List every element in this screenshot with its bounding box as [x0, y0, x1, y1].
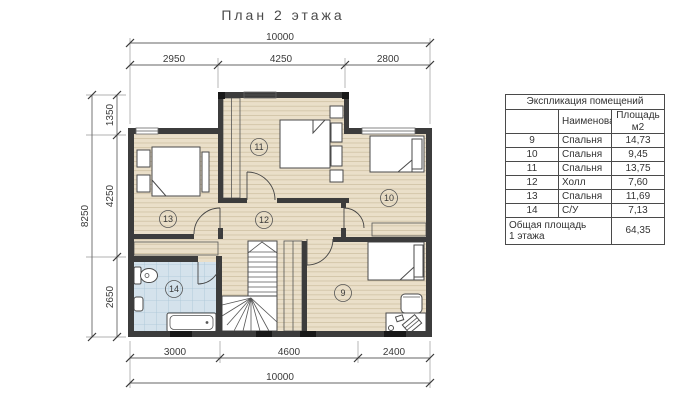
dim-bottom-2: 4600: [278, 347, 301, 358]
legend-col-name: Наименование: [559, 110, 612, 134]
table-row: 12Холл7,60: [506, 176, 665, 190]
dim-left-1: 1350: [105, 103, 116, 126]
sink-icon: [134, 297, 143, 311]
table-row: 11Спальня13,75: [506, 162, 665, 176]
window-room13: [136, 128, 158, 134]
toilet-icon: [134, 267, 158, 284]
dim-left-total: 8250: [80, 204, 91, 227]
svg-text:9: 9: [340, 288, 345, 298]
floor-plan-page: План 2 этажа: [0, 0, 700, 410]
legend-title: Экспликация помещений: [506, 95, 665, 110]
svg-text:12: 12: [259, 215, 269, 225]
dim-bottom-total: 10000: [266, 372, 294, 383]
dim-top-3: 2800: [377, 54, 400, 65]
dim-top-total: 10000: [266, 32, 294, 43]
total-value: 64,35: [612, 218, 665, 245]
table-row: 10Спальня9,45: [506, 148, 665, 162]
svg-text:11: 11: [254, 142, 263, 152]
table-row: 9Спальня14,73: [506, 134, 665, 148]
dim-left-2: 4250: [105, 184, 116, 207]
bed-room9: [368, 242, 424, 280]
table-row: 13Спальня11,69: [506, 190, 665, 204]
legend-col-area: Площадьм2: [612, 110, 665, 134]
total-label: Общая площадь1 этажа: [506, 218, 612, 245]
dim-top-2: 4250: [270, 54, 293, 65]
dim-bottom-1: 3000: [164, 347, 187, 358]
dim-left-3: 2650: [105, 285, 116, 308]
window-room10: [362, 128, 415, 134]
room-legend-table: Экспликация помещений Наименование Площа…: [505, 94, 665, 245]
svg-text:14: 14: [169, 284, 179, 294]
svg-text:10: 10: [384, 193, 394, 203]
dim-bottom-3: 2400: [383, 347, 406, 358]
svg-text:13: 13: [163, 214, 173, 224]
bed-room10: [370, 136, 424, 172]
dim-top-1: 2950: [163, 54, 186, 65]
page-title: План 2 этажа: [130, 7, 436, 23]
table-total-row: Общая площадь1 этажа 64,35: [506, 218, 665, 245]
table-row: 14С/У7,13: [506, 204, 665, 218]
dresser-room13: [202, 152, 209, 192]
legend-col-num: [506, 110, 559, 134]
bathtub-icon: [167, 313, 216, 332]
